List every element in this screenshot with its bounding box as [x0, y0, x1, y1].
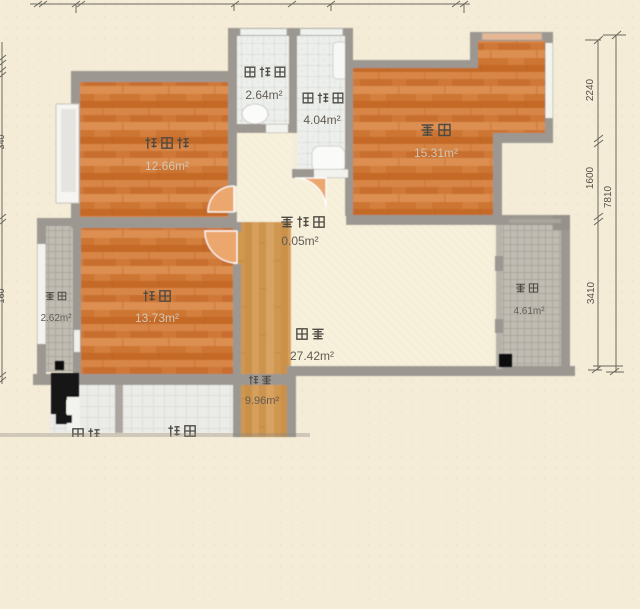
svg-text:4.04m²: 4.04m² [303, 113, 340, 127]
svg-text:160: 160 [0, 288, 6, 303]
svg-text:12.66m²: 12.66m² [145, 159, 189, 173]
svg-text:2.62m²: 2.62m² [40, 313, 72, 324]
svg-text:2240: 2240 [585, 78, 596, 101]
svg-text:4.61m²: 4.61m² [513, 306, 545, 317]
svg-text:1600: 1600 [585, 166, 596, 189]
svg-text:13.73m²: 13.73m² [135, 311, 179, 325]
svg-text:2.64m²: 2.64m² [245, 88, 282, 102]
svg-text:27.42m²: 27.42m² [290, 349, 334, 363]
svg-text:9.96m²: 9.96m² [245, 395, 280, 407]
svg-text:15.31m²: 15.31m² [414, 146, 458, 160]
svg-text:0.05m²: 0.05m² [281, 234, 318, 248]
svg-text:3410: 3410 [586, 281, 597, 304]
svg-text:7810: 7810 [603, 185, 614, 208]
svg-text:340: 340 [0, 134, 6, 149]
